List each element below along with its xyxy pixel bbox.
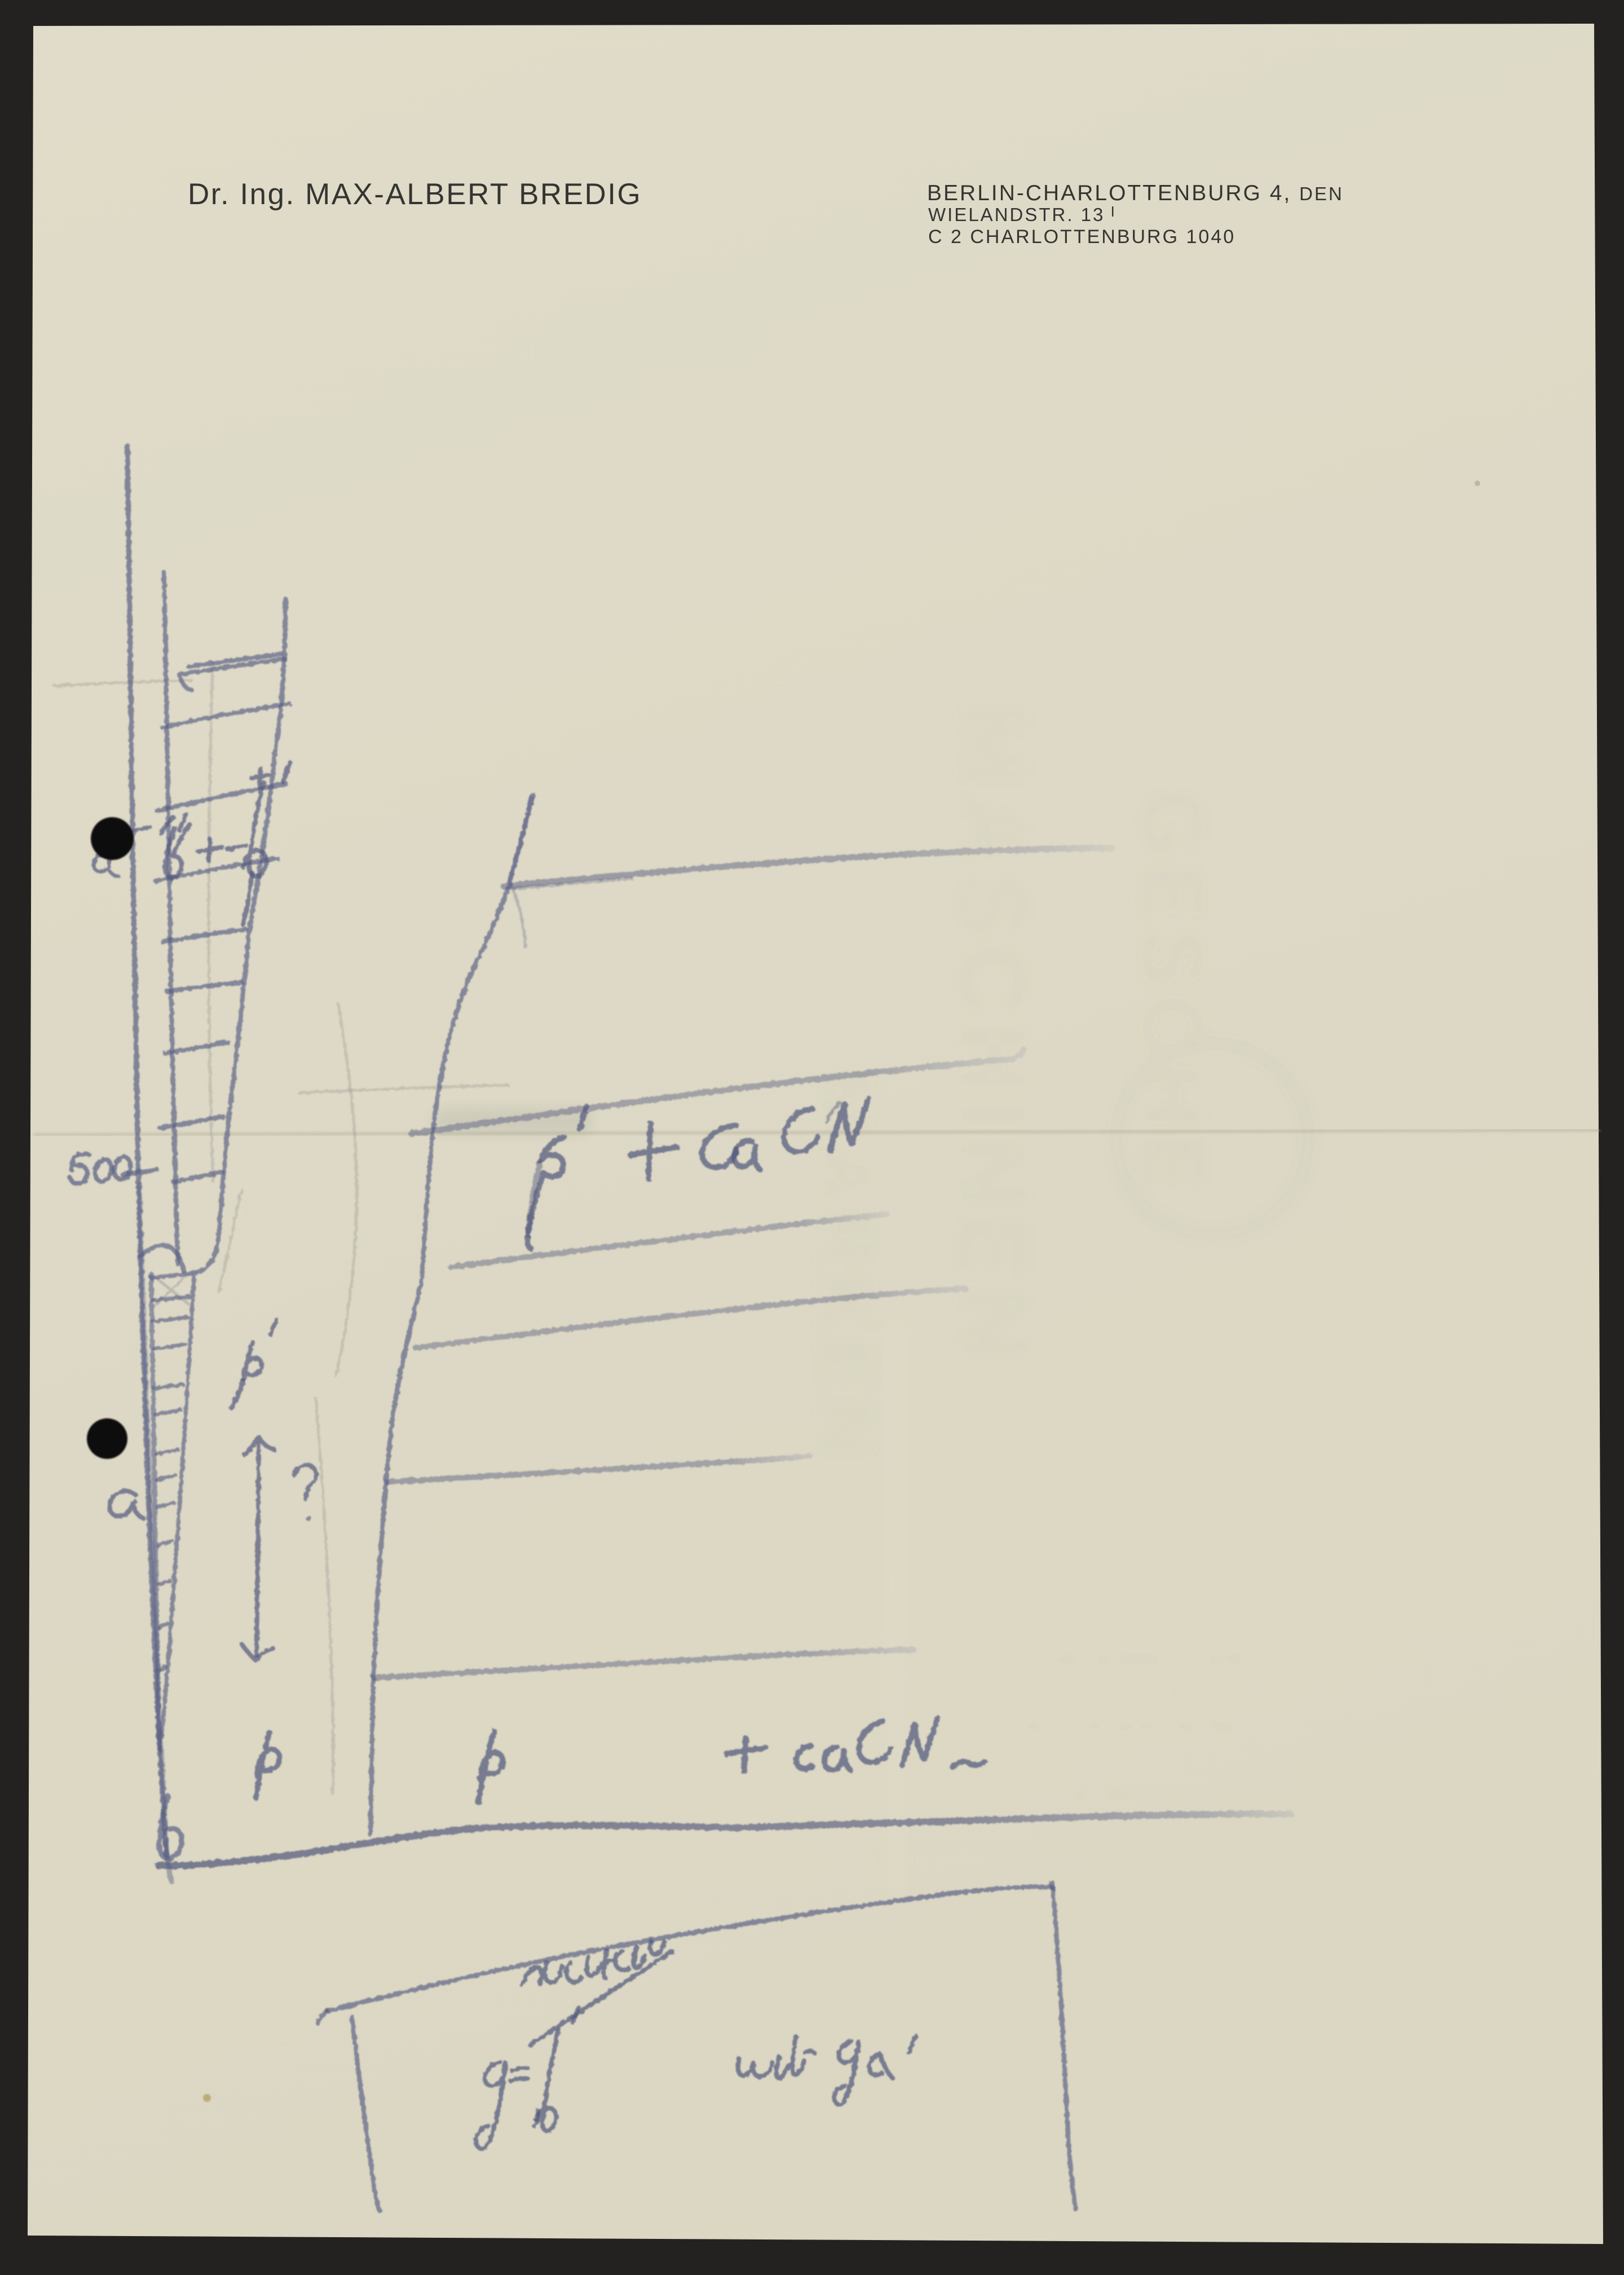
svg-text:BERLIN-CHARLOTTENBURG 4, DEN: BERLIN-CHARLOTTENBURG 4, DEN xyxy=(927,181,1344,205)
svg-text:··– ·––· –·–· ··–: ··– ·––· –·–· ··– xyxy=(1060,1783,1232,1803)
svg-text:–·· ···– ·–·– ··–· ––: –·· ···– ·–·– ··–· –– xyxy=(1026,1715,1236,1735)
svg-text:WIELANDSTR. 13 I: WIELANDSTR. 13 I xyxy=(928,203,1116,225)
svg-text:GESCHE: GESCHE xyxy=(1124,790,1222,1200)
svg-text:··–· ·– –––· ··· –·–: ··–· ·– –––· ··· –·– xyxy=(1043,1647,1244,1668)
svg-text:MASCHINEN: MASCHINEN xyxy=(939,705,1046,1366)
svg-text:C 2 CHARLOTTENBURG 1040: C 2 CHARLOTTENBURG 1040 xyxy=(928,226,1235,248)
svg-text:Dr. Ing. MAX-ALBERT BREDIG: Dr. Ing. MAX-ALBERT BREDIG xyxy=(188,178,642,211)
